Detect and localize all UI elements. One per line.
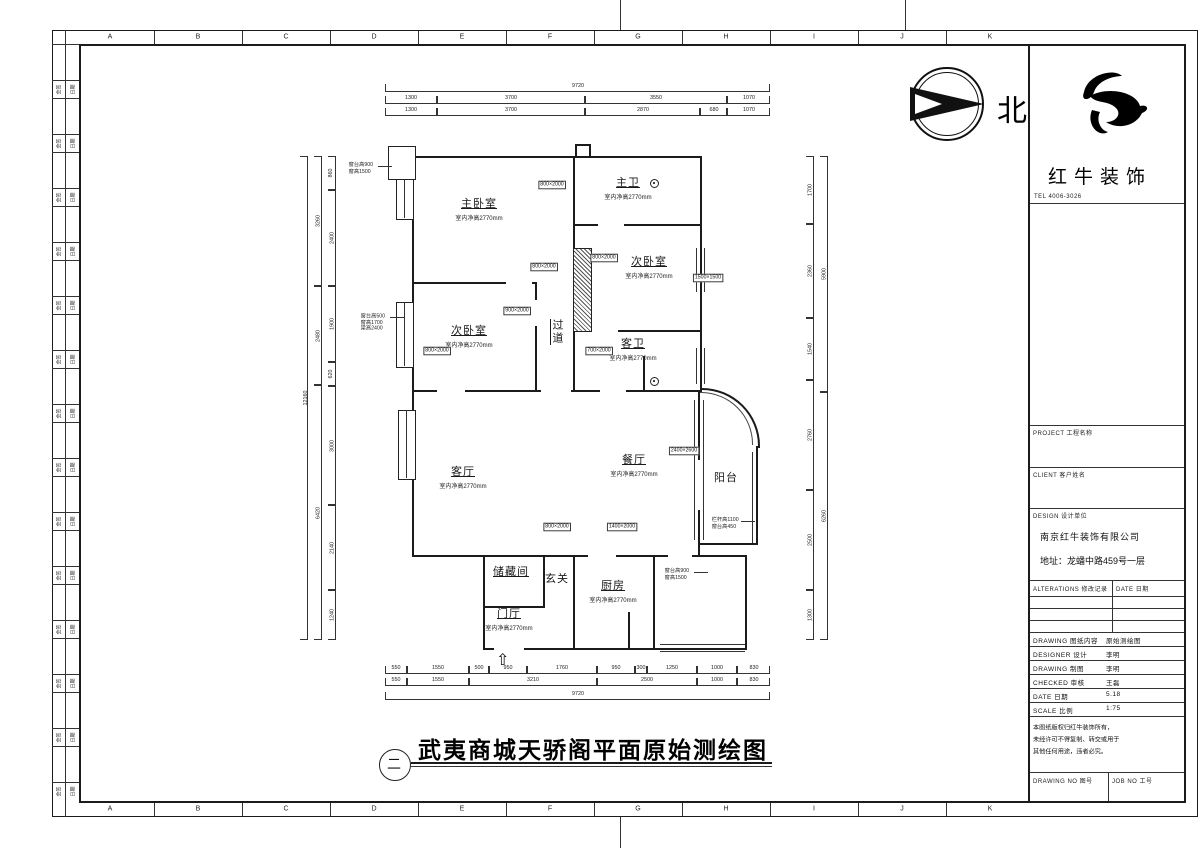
binding-divider (52, 98, 79, 99)
dimension-segment: 3000 (328, 386, 336, 505)
leader-annotation: 窗台高500窗高1700梁高2400 (361, 313, 385, 332)
tb-divider (1112, 580, 1113, 632)
dimension-segment: 1000 (697, 678, 737, 686)
grid-letter-bottom: K (988, 806, 993, 813)
window-line (660, 644, 745, 645)
dimension-value: 2480 (316, 329, 321, 341)
grid-tick (858, 803, 859, 816)
dimension-value: 3000 (330, 439, 335, 451)
grid-letter-bottom: H (723, 806, 728, 813)
tb-design-header: DESIGN 设计单位 (1033, 511, 1087, 520)
dimension-value: 680 (709, 107, 718, 112)
binding-divider (52, 674, 79, 675)
tb-drawing-no-label: DRAWING NO 图号 (1033, 776, 1093, 785)
dimension-segment: 2360 (806, 224, 814, 318)
dimension-segment: 12160 (300, 156, 308, 640)
title-underline (411, 762, 772, 764)
binding-divider (52, 260, 79, 261)
dimension-value: 500 (474, 665, 483, 670)
opening-size-tag: 1500×1500 (693, 274, 723, 283)
dimension-value: 6260 (822, 510, 827, 522)
drawing-sheet: 北 红牛装饰 TEL 4006-3026 PROJECT 工程名称 CLIENT… (0, 0, 1200, 848)
dimension-value: 1300 (405, 107, 417, 112)
dimension-segment: 6420 (314, 385, 322, 640)
tb-company-address: 地址：龙蟠中路459号一层 (1040, 554, 1145, 567)
dimension-segment: 3700 (437, 108, 585, 116)
grid-letter-top: B (196, 34, 201, 41)
tb-row-value: 李明 (1106, 663, 1120, 673)
tb-divider (1030, 702, 1184, 703)
grid-tick (506, 803, 507, 816)
door-opening (506, 281, 532, 285)
wall (700, 555, 747, 557)
dimension-value: 1550 (432, 665, 444, 670)
grid-tick (682, 31, 683, 44)
outer-border-bottom (52, 816, 1198, 817)
room-height-label: 室内净高2770mm (455, 212, 502, 221)
binding-cell-label: 会签 (56, 246, 63, 256)
room-height-label: 室内净高2770mm (625, 270, 672, 279)
room-label: 客卫 (621, 335, 645, 351)
dimension-segment: 1700 (806, 156, 814, 224)
tb-divider (1030, 632, 1184, 633)
binding-cell-label: 日期 (70, 570, 77, 580)
opening-size-tag: 1400×2000 (607, 523, 637, 532)
leader-line (378, 166, 392, 167)
dimension-value: 1070 (742, 95, 754, 100)
binding-cell-label: 日期 (70, 516, 77, 526)
tb-alterations-label: ALTERATIONS 修改记录 (1033, 584, 1107, 593)
binding-divider (52, 188, 79, 189)
room-label: 主卧室 (461, 195, 497, 211)
wall (589, 144, 591, 158)
grid-tick (770, 31, 771, 44)
grid-tick (682, 803, 683, 816)
tb-row-label: DATE 日期 (1033, 691, 1068, 701)
binding-divider (52, 404, 79, 405)
window-line (704, 348, 705, 384)
dimension-segment: 550 (385, 666, 407, 674)
room-label: 阳台 (714, 469, 738, 485)
binding-cell-label: 日期 (70, 624, 77, 634)
title-index: 二 (387, 754, 401, 774)
dimension-value: 1250 (666, 665, 678, 670)
tb-row-label: CHECKED 审核 (1033, 677, 1085, 687)
room-height-label: 室内净高2770mm (610, 468, 657, 477)
ac-platform (388, 146, 416, 180)
dimension-value: 3210 (527, 677, 539, 682)
room-label: 门厅 (497, 605, 521, 621)
dimension-segment: 830 (737, 678, 770, 686)
binding-cell-label: 日期 (70, 138, 77, 148)
grid-letter-top: J (900, 34, 904, 41)
dimension-value: 12160 (304, 390, 309, 405)
grid-letter-top: I (813, 34, 815, 41)
dimension-value: 3550 (650, 95, 662, 100)
window-bay-line (404, 302, 405, 366)
tb-note-line: 本图纸版权归红牛装饰所有， (1033, 722, 1113, 732)
outer-border-top (52, 30, 1198, 31)
dimension-value: 550 (391, 665, 400, 670)
opening-size-tag: 800×2000 (530, 263, 557, 272)
dimension-value: 2360 (808, 265, 813, 277)
window-bay (396, 302, 414, 368)
grid-tick (506, 31, 507, 44)
tb-row-value: 原始测绘图 (1106, 635, 1141, 645)
grid-letter-bottom: F (548, 806, 552, 813)
grid-letter-bottom: B (196, 806, 201, 813)
dimension-segment: 680 (700, 108, 727, 116)
dimension-value: 1900 (330, 318, 335, 330)
binding-divider (52, 782, 79, 783)
tb-job-no-label: JOB NO 工号 (1112, 776, 1153, 785)
wall (573, 555, 575, 648)
binding-cell-label: 会签 (56, 138, 63, 148)
dimension-segment: 830 (737, 666, 770, 674)
room-label: 次卧室 (631, 253, 667, 269)
leader-annotation: 窗台高900窗高1500 (349, 162, 373, 174)
door-opening (598, 223, 624, 227)
tb-row-value: 1:75 (1106, 705, 1121, 712)
binding-cell-label: 会签 (56, 570, 63, 580)
binding-divider (52, 458, 79, 459)
dimension-segment: 9720 (385, 692, 770, 700)
dimension-value: 3700 (505, 95, 517, 100)
dimension-value: 2760 (808, 429, 813, 441)
binding-cell-label: 会签 (56, 354, 63, 364)
binding-cell-label: 会签 (56, 462, 63, 472)
dimension-segment: 1240 (328, 590, 336, 640)
binding-cell-label: 会签 (56, 624, 63, 634)
tb-row-label: DRAWING 制图 (1033, 663, 1084, 673)
opening-size-tag: 800×2000 (423, 347, 450, 356)
wall (573, 330, 575, 392)
dimension-segment: 1300 (385, 96, 437, 104)
binding-cell-label: 日期 (70, 192, 77, 202)
binding-divider (52, 638, 79, 639)
dimension-segment: 2140 (328, 505, 336, 590)
dimension-segment: 3550 (585, 96, 727, 104)
tb-divider (1030, 596, 1184, 597)
grid-tick (418, 803, 419, 816)
dimension-value: 550 (391, 677, 400, 682)
room-height-label: 室内净高2770mm (439, 480, 486, 489)
binding-cell-label: 会签 (56, 786, 63, 796)
binding-divider (52, 350, 79, 351)
dimension-segment: 9720 (385, 84, 770, 92)
room-label: 次卧室 (451, 322, 487, 338)
dimension-segment: 620 (328, 362, 336, 386)
dimension-segment: 3260 (314, 156, 322, 286)
dimension-segment: 1070 (727, 96, 770, 104)
grid-tick (858, 31, 859, 44)
dimension-value: 1540 (808, 343, 813, 355)
dimension-value: 1070 (742, 107, 754, 112)
balcony-rail-line (752, 452, 753, 543)
door-opening (535, 300, 539, 326)
grid-tick (594, 31, 595, 44)
tb-divider (1030, 203, 1184, 204)
dimension-value: 9720 (571, 691, 583, 696)
dimension-value: 830 (749, 677, 758, 682)
tb-divider (1030, 580, 1184, 581)
grid-tick (154, 803, 155, 816)
tb-divider (1030, 716, 1184, 717)
room-height-label: 室内净高2770mm (604, 191, 651, 200)
grid-letter-bottom: C (283, 806, 288, 813)
tb-divider (1030, 688, 1184, 689)
floor-drain-icon (650, 377, 659, 386)
grid-letter-bottom: A (108, 806, 113, 813)
binding-divider (52, 80, 79, 81)
dimension-segment: 1540 (806, 318, 814, 380)
dimension-value: 3700 (505, 107, 517, 112)
tb-divider (1030, 425, 1184, 426)
room-label: 储藏间 (493, 563, 529, 579)
dimension-value: 2140 (330, 541, 335, 553)
dimension-value: 1240 (330, 609, 335, 621)
door-opening (600, 389, 626, 393)
binding-cell-label: 日期 (70, 732, 77, 742)
tb-divider (1108, 772, 1109, 801)
binding-divider (52, 692, 79, 693)
grid-letter-top: G (635, 34, 640, 41)
dimension-segment: 2400 (328, 190, 336, 286)
tb-divider (1030, 646, 1184, 647)
grid-letter-bottom: G (635, 806, 640, 813)
tb-divider (1030, 620, 1184, 621)
frame-right (1184, 44, 1186, 803)
balcony-bottom (700, 543, 758, 545)
dimension-value: 950 (611, 665, 620, 670)
opening-size-tag: 700×2000 (585, 347, 612, 356)
dimension-value: 1300 (808, 609, 813, 621)
grid-letter-top: D (371, 34, 376, 41)
binding-divider (52, 728, 79, 729)
fold-mark (905, 0, 906, 30)
dimension-value: 1760 (556, 665, 568, 670)
window-line (660, 651, 745, 652)
binding-cell-label: 会签 (56, 732, 63, 742)
dimension-segment: 1000 (697, 666, 737, 674)
dimension-segment: 2500 (806, 490, 814, 590)
room-label: 厨房 (601, 577, 625, 593)
room-label: 餐厅 (622, 451, 646, 467)
tb-row-label: DRAWING 图纸内容 (1033, 635, 1098, 645)
leader-annotation: 栏杆高1100窗台高450 (712, 517, 739, 529)
wall (483, 555, 485, 650)
grid-tick (330, 803, 331, 816)
tb-note-line: 未经许可不得复制、转交或用于 (1033, 734, 1119, 744)
binding-divider (52, 206, 79, 207)
wall (412, 156, 702, 158)
binding-divider (52, 422, 79, 423)
dimension-segment: 1550 (407, 678, 469, 686)
outer-border-left (52, 30, 53, 817)
outer-border-right (1197, 30, 1198, 817)
window-line (704, 248, 705, 292)
dimension-segment: 6260 (820, 392, 828, 640)
window-line (694, 400, 695, 540)
dimension-value: 5900 (822, 268, 827, 280)
grid-letter-bottom: J (900, 806, 904, 813)
dimension-segment: 950 (597, 666, 635, 674)
brand-logo-icon (1062, 66, 1154, 150)
tb-divider (1030, 772, 1184, 773)
grid-tick (770, 803, 771, 816)
grid-tick (594, 803, 595, 816)
title-underline-2 (411, 766, 772, 767)
dimension-value: 1300 (405, 95, 417, 100)
north-label: 北 (997, 86, 1027, 130)
grid-tick (946, 803, 947, 816)
dimension-segment: 3210 (469, 678, 597, 686)
door-opening (437, 389, 465, 393)
wall (575, 144, 577, 158)
tb-divider (1030, 467, 1184, 468)
tb-row-label: SCALE 比例 (1033, 705, 1073, 715)
grid-tick (330, 31, 331, 44)
binding-divider (52, 584, 79, 585)
wall (628, 612, 630, 650)
room-label: 主卫 (616, 174, 640, 190)
dimension-segment: 300 (635, 666, 647, 674)
dimension-value: 1700 (808, 184, 813, 196)
dimension-value: 9720 (571, 83, 583, 88)
window-line (696, 248, 697, 292)
window-bay-line (406, 410, 407, 478)
binding-divider (52, 746, 79, 747)
grid-letter-top: F (548, 34, 552, 41)
opening-size-tag: 800×2000 (543, 523, 570, 532)
dimension-segment: 1760 (527, 666, 597, 674)
dimension-value: 830 (749, 665, 758, 670)
dimension-segment: 1550 (407, 666, 469, 674)
tb-row-value: 李明 (1106, 649, 1120, 659)
leader-line (741, 521, 755, 522)
dimension-value: 620 (328, 369, 333, 378)
tb-divider (1030, 674, 1184, 675)
tb-section1-label: PROJECT 工程名称 (1033, 428, 1093, 437)
binding-divider (52, 566, 79, 567)
dimension-segment: 2500 (597, 678, 697, 686)
door-opening (541, 389, 571, 393)
dimension-value: 860 (328, 168, 333, 177)
dimension-value: 1000 (711, 665, 723, 670)
binding-divider (52, 512, 79, 513)
binding-cell-label: 日期 (70, 678, 77, 688)
brand-name: 红牛装饰 (1048, 162, 1152, 189)
dimension-segment: 950 (489, 666, 527, 674)
tb-alterations-date-label: DATE 日期 (1116, 584, 1149, 593)
dimension-segment: 5900 (820, 156, 828, 392)
binding-cell-label: 日期 (70, 84, 77, 94)
brand-tel: TEL 4006-3026 (1034, 194, 1082, 200)
dimension-segment: 500 (469, 666, 489, 674)
binding-divider (52, 530, 79, 531)
binding-cell-label: 日期 (70, 354, 77, 364)
dimension-segment: 2480 (314, 286, 322, 385)
grid-letter-bottom: I (813, 806, 815, 813)
opening-size-tag: 2400×2600 (669, 447, 699, 456)
fold-mark (620, 0, 621, 30)
door-opening (494, 646, 524, 652)
fold-mark (620, 817, 621, 848)
balcony-arc-inner (700, 392, 753, 445)
wall (653, 555, 655, 648)
binding-cell-label: 日期 (70, 300, 77, 310)
grid-letter-top: K (988, 34, 993, 41)
tb-row-value: 5.18 (1106, 691, 1121, 698)
binding-cell-label: 会签 (56, 516, 63, 526)
leader-line (390, 317, 404, 318)
dimension-value: 2400 (330, 232, 335, 244)
tb-section2-label: CLIENT 客户姓名 (1033, 470, 1085, 479)
floor-drain-icon (650, 179, 659, 188)
dimension-segment: 1300 (385, 108, 437, 116)
binding-cell-label: 会签 (56, 678, 63, 688)
tb-row-value: 王磊 (1106, 677, 1120, 687)
opening-size-tag: 800×2000 (590, 254, 617, 263)
room-label: 过道 (549, 319, 565, 345)
grid-letter-bottom: E (460, 806, 465, 813)
hatched-wall (573, 248, 592, 332)
dimension-value: 2500 (808, 534, 813, 546)
wall (535, 282, 537, 392)
wall (745, 555, 747, 650)
dimension-segment: 1900 (328, 286, 336, 362)
window-line (696, 348, 697, 384)
binding-cell-label: 日期 (70, 462, 77, 472)
opening-size-tag: 800×2000 (538, 181, 565, 190)
binding-strip-line (65, 30, 66, 817)
binding-cell-label: 日期 (70, 246, 77, 256)
dimension-segment: 2760 (806, 380, 814, 490)
dimension-value: 1550 (432, 677, 444, 682)
tb-divider (1030, 660, 1184, 661)
dimension-segment: 1300 (806, 590, 814, 640)
frame-top (79, 44, 1186, 46)
balcony-rail (756, 446, 758, 545)
room-height-label: 室内净高2770mm (485, 622, 532, 631)
binding-cell-label: 会签 (56, 192, 63, 202)
dimension-value: 3260 (316, 215, 321, 227)
sheet-title: 武夷商城天骄阁平面原始测绘图 (418, 731, 768, 765)
binding-cell-label: 日期 (70, 786, 77, 796)
dimension-segment: 860 (328, 156, 336, 190)
grid-letter-top: H (723, 34, 728, 41)
leader-line (694, 572, 708, 573)
tb-divider (1030, 508, 1184, 509)
grid-tick (946, 31, 947, 44)
frame-bottom (79, 801, 1186, 803)
dimension-value: 1000 (711, 677, 723, 682)
binding-cell-label: 会签 (56, 300, 63, 310)
dimension-value: 2870 (636, 107, 648, 112)
dimension-value: 2500 (641, 677, 653, 682)
tb-divider (1030, 608, 1184, 609)
grid-letter-top: C (283, 34, 288, 41)
grid-letter-bottom: D (371, 806, 376, 813)
door-opening (697, 460, 702, 510)
room-height-label: 室内净高2770mm (445, 339, 492, 348)
tb-row-label: DESIGNER 设计 (1033, 649, 1087, 659)
binding-divider (52, 314, 79, 315)
door-opening (588, 554, 616, 558)
window-bay (398, 410, 416, 480)
door-opening (592, 329, 618, 333)
binding-divider (52, 134, 79, 135)
